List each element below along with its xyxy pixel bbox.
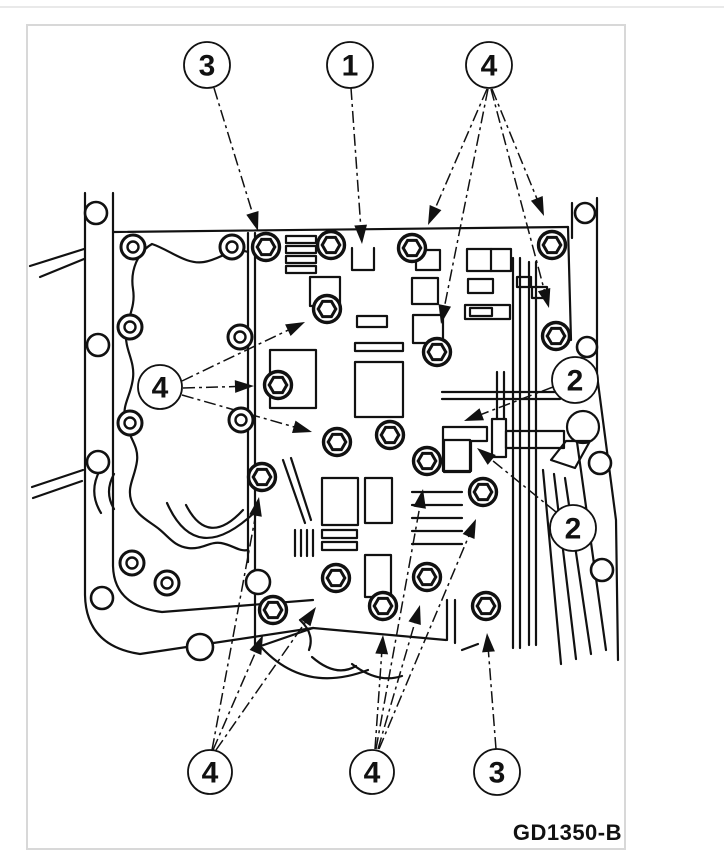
leader-line	[183, 386, 239, 388]
arrowhead	[285, 322, 305, 336]
arrowhead	[439, 304, 452, 324]
arrowhead	[428, 205, 441, 225]
bolt-hex	[257, 239, 275, 254]
case-gasket-hole	[229, 408, 253, 432]
arrowhead	[246, 211, 258, 231]
callout-number: 2	[565, 513, 582, 546]
callout-4-bottom-left: 4	[188, 750, 232, 794]
bolt-hex	[543, 237, 561, 252]
callout-2-lower: 2	[550, 505, 596, 551]
leader-arrow-to-4	[428, 89, 487, 225]
hex-bolt-item-4	[470, 479, 497, 506]
arrowhead	[292, 421, 312, 433]
hole-inner	[125, 418, 136, 429]
hex-bolt-item-4	[370, 593, 397, 620]
arrowhead	[375, 635, 388, 654]
arrowhead	[354, 225, 367, 244]
case-gasket-hole	[118, 315, 142, 339]
case-gasket-hole	[118, 411, 142, 435]
flange-hole	[85, 202, 107, 224]
bolt-hex	[269, 377, 287, 392]
leader-arrow-to-4	[378, 605, 421, 749]
hole-inner	[128, 242, 139, 253]
case-gasket-hole	[120, 551, 144, 575]
callout-number: 2	[567, 365, 584, 398]
bolt-hex	[477, 598, 495, 613]
leader-arrow-to-4	[216, 607, 316, 750]
leader-line	[376, 504, 420, 749]
hex-bolt-item-3	[473, 593, 500, 620]
arrowhead	[463, 519, 476, 539]
bolt-hex	[253, 469, 271, 484]
bolt-hex	[264, 602, 282, 617]
flange-hole	[246, 570, 270, 594]
hex-bolt-item-4	[260, 597, 287, 624]
leader-line	[351, 88, 361, 229]
bolt-hex	[328, 434, 346, 449]
hex-bolt-item-4	[265, 372, 292, 399]
callout-4-left: 4	[138, 365, 182, 409]
hole-inner	[235, 332, 246, 343]
callout-4-top-right: 4	[466, 42, 512, 88]
arrowhead	[409, 605, 421, 625]
hex-bolt-item-4	[424, 339, 451, 366]
bolt-hex	[403, 240, 421, 255]
callout-number: 4	[152, 372, 169, 405]
case-gasket-hole	[228, 325, 252, 349]
bolt-hex	[327, 570, 345, 585]
leader-arrow-to-4	[183, 380, 254, 393]
case-gasket-hole	[155, 571, 179, 595]
callout-number: 3	[489, 757, 506, 790]
leader-line	[444, 89, 488, 309]
bolt-hex	[374, 598, 392, 613]
bolt-hex	[547, 328, 565, 343]
bolt-hex	[318, 301, 336, 316]
leader-line	[492, 89, 538, 202]
arrowhead	[482, 633, 495, 652]
leader-arrow-to-4	[439, 89, 489, 324]
arrowhead	[531, 196, 544, 216]
flange-hole	[87, 334, 109, 356]
page: { "page": { "rule_color": "#e9e9e9", "fr…	[0, 0, 724, 850]
hex-bolt-item-4	[314, 296, 341, 323]
callout-number: 1	[342, 50, 359, 83]
leader-line	[434, 89, 487, 211]
flange-hole	[591, 559, 613, 581]
bolt-hex	[381, 427, 399, 442]
callout-1-top: 1	[327, 42, 373, 88]
flange-hole	[577, 337, 597, 357]
leader-arrow-to-4	[379, 519, 476, 749]
case-gasket-hole	[220, 235, 244, 259]
callout-number: 4	[481, 50, 498, 83]
leader-line	[491, 89, 545, 293]
hole-inner	[127, 558, 138, 569]
hole-inner	[236, 415, 247, 426]
arrowhead	[464, 408, 484, 421]
hex-bolt	[318, 232, 345, 259]
hex-bolt	[377, 422, 404, 449]
leader-arrow-to-3	[214, 88, 259, 231]
callout-4-bottom-center: 4	[350, 750, 394, 794]
callout-number: 3	[199, 50, 216, 83]
leader-line	[213, 649, 257, 750]
leader-line	[214, 88, 254, 217]
callout-2-upper: 2	[552, 357, 598, 403]
hex-bolt-item-4	[539, 232, 566, 259]
flange-hole	[87, 451, 109, 473]
hex-bolt-item-3	[253, 234, 280, 261]
hole-inner	[162, 578, 173, 589]
leader-arrow-to-4	[492, 89, 544, 216]
bolt-hex	[418, 453, 436, 468]
hex-bolt-item-4	[249, 464, 276, 491]
hex-bolt-item-4	[414, 564, 441, 591]
bolt-hex	[474, 484, 492, 499]
bolt-hex	[428, 344, 446, 359]
leader-arrow-to-3	[482, 633, 496, 749]
figure-code: GD1350-B	[0, 820, 622, 846]
callout-3-top: 3	[184, 42, 230, 88]
hex-bolt-item-4	[543, 323, 570, 350]
valve-body-diagram: 314422443	[0, 0, 724, 850]
hole-inner	[125, 322, 136, 333]
leader-line	[375, 650, 382, 749]
bolt-hex	[418, 569, 436, 584]
flange-hole	[589, 452, 611, 474]
case-gasket-hole	[121, 235, 145, 259]
hex-bolt-item-4	[399, 235, 426, 262]
hex-bolt-item-4	[414, 448, 441, 475]
leader-arrow-to-1	[351, 88, 367, 244]
callout-3-bottom: 3	[474, 749, 520, 795]
flange-hole	[91, 587, 113, 609]
bolt-hex	[322, 237, 340, 252]
arrowhead	[235, 380, 254, 393]
hex-bolt-item-4	[323, 565, 350, 592]
leader-line	[488, 648, 496, 749]
valve-body-detail	[248, 227, 571, 650]
callout-number: 4	[364, 757, 381, 790]
callout-number: 4	[202, 757, 219, 790]
flange-hole	[187, 634, 213, 660]
hex-bolt-item-4	[324, 429, 351, 456]
flange-hole	[575, 203, 595, 223]
hole-inner	[227, 242, 238, 253]
